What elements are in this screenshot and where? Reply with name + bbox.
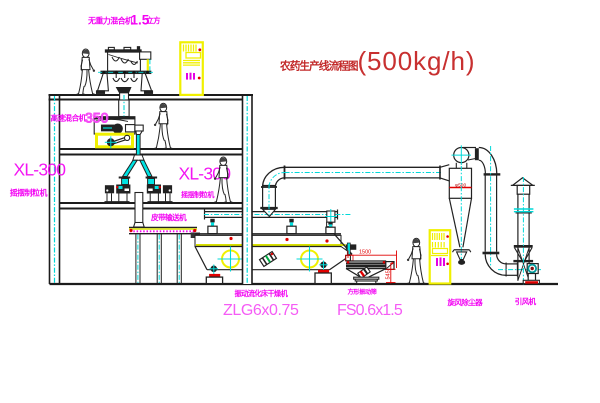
svg-text:引风机: 引风机 <box>515 296 537 306</box>
svg-text:350: 350 <box>85 110 109 126</box>
svg-text:FS0.6x1.5: FS0.6x1.5 <box>337 302 403 319</box>
svg-text:XL-300: XL-300 <box>14 160 67 180</box>
svg-text:摇摆制粒机: 摇摆制粒机 <box>181 190 214 199</box>
svg-text:无重力混合机: 无重力混合机 <box>87 16 133 26</box>
svg-text:1500: 1500 <box>359 250 371 256</box>
svg-text:农药生产线流程图: 农药生产线流程图 <box>279 60 358 73</box>
svg-text:ZLG6x0.75: ZLG6x0.75 <box>223 302 299 319</box>
svg-text:摇摆制粒机: 摇摆制粒机 <box>10 187 48 197</box>
svg-text:旋风除尘器: 旋风除尘器 <box>447 297 484 307</box>
svg-text:(500kg/h): (500kg/h) <box>358 46 476 76</box>
svg-text:方形振动筛: 方形振动筛 <box>348 288 377 296</box>
svg-text:振动流化床干燥机: 振动流化床干燥机 <box>235 289 289 298</box>
svg-text:高速混合机: 高速混合机 <box>51 113 87 123</box>
svg-text:545: 545 <box>386 270 392 279</box>
svg-text:立方: 立方 <box>146 15 161 25</box>
svg-text:φ500: φ500 <box>455 182 466 188</box>
svg-text:皮带输送机: 皮带输送机 <box>150 212 187 222</box>
